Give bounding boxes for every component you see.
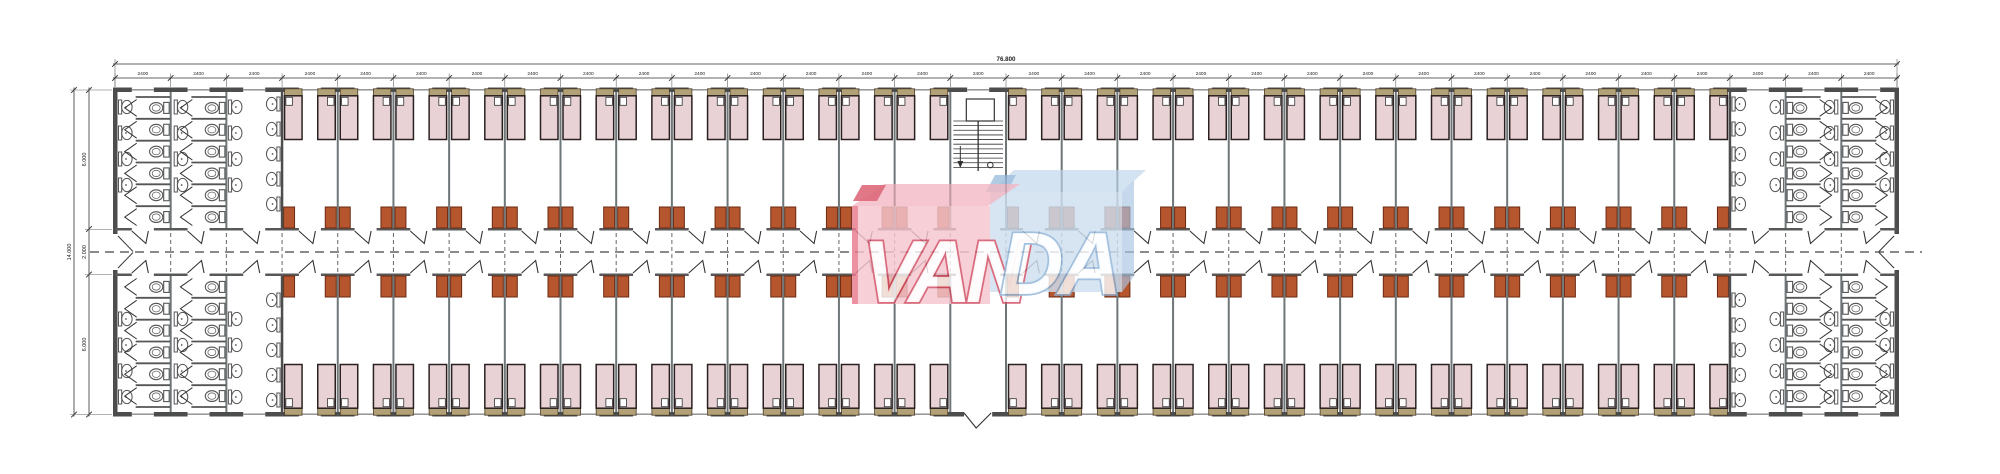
bay-dimension-label: 2400	[1084, 71, 1095, 77]
bay-dimension-label: 2400	[750, 71, 761, 77]
corridor-exit-door	[1879, 253, 1894, 269]
bay-dimension-label: 2400	[1585, 71, 1596, 77]
bay-dimension-label: 2400	[138, 71, 149, 77]
floor-plan-canvas: VANDA76.80024002400240024002400240024002…	[0, 0, 2000, 474]
staircase	[953, 99, 1003, 171]
bay-dimension-label: 2400	[472, 71, 483, 77]
bay-dimension-label: 2400	[249, 71, 260, 77]
bay-dimension-label: 2400	[360, 71, 371, 77]
bay-dimension-label: 2400	[305, 71, 316, 77]
bay-dimension-label: 2400	[861, 71, 872, 77]
bay-dimension-label: 2400	[1641, 71, 1652, 77]
logo-pink-edge	[852, 206, 858, 304]
corridor-exit-door	[1879, 236, 1894, 252]
bay-dimension-label: 2400	[1140, 71, 1151, 77]
logo-blue-top	[990, 170, 1146, 192]
overall-dim-label: 76.800	[997, 56, 1016, 63]
bay-dimension-label: 2400	[1029, 71, 1040, 77]
bay-dimension-label: 2400	[1363, 71, 1374, 77]
depth-total-label: 14.000	[67, 244, 73, 261]
depth-segment-label: 6.000	[82, 338, 88, 352]
bay-dimension-label: 2400	[1530, 71, 1541, 77]
bay-dimension-label: 2400	[973, 71, 984, 77]
bathroom-top-left	[119, 92, 283, 244]
vanda-logo: VANDA	[852, 170, 1146, 321]
bay-dimension-label: 2400	[583, 71, 594, 77]
bay-dimension-label: 2400	[527, 71, 538, 77]
bay-dimension-label: 2400	[1474, 71, 1485, 77]
depth-segment-label: 6.000	[82, 153, 88, 167]
corridor-exit-door	[118, 236, 133, 252]
bay-dimension-label: 2400	[806, 71, 817, 77]
entrance	[964, 411, 992, 428]
bay-dimension-label: 2400	[1251, 71, 1262, 77]
bathroom-top-right	[1730, 92, 1894, 244]
logo-blue-side	[1122, 180, 1134, 292]
bathroom-bottom-right	[1730, 261, 1894, 413]
depth-segment-label: 2.000	[82, 245, 88, 259]
bay-dimension-label: 2400	[694, 71, 705, 77]
floor-plan: VANDA76.80024002400240024002400240024002…	[0, 0, 2000, 474]
dimensions-top: 76.8002400240024002400240024002400240024…	[112, 56, 1900, 87]
bathroom-bottom-left	[119, 261, 283, 413]
bay-dimension-label: 2400	[1697, 71, 1708, 77]
stair-well	[966, 99, 994, 121]
bay-dimension-label: 2400	[193, 71, 204, 77]
bay-dimension-label: 2400	[639, 71, 650, 77]
bay-dimension-label: 2400	[1808, 71, 1819, 77]
bay-dimension-label: 2400	[416, 71, 427, 77]
floor-plan-svg: VANDA76.80024002400240024002400240024002…	[0, 0, 2000, 474]
bay-dimension-label: 2400	[1752, 71, 1763, 77]
bay-dimension-label: 2400	[917, 71, 928, 77]
bay-dimension-label: 2400	[1864, 71, 1875, 77]
logo-text-da: DA	[1000, 214, 1117, 313]
bay-dimension-label: 2400	[1307, 71, 1318, 77]
bay-dimension-label: 2400	[1196, 71, 1207, 77]
corridor-exit-door	[118, 253, 133, 269]
stair-arrow-head	[957, 161, 963, 168]
bay-dimension-label: 2400	[1418, 71, 1429, 77]
